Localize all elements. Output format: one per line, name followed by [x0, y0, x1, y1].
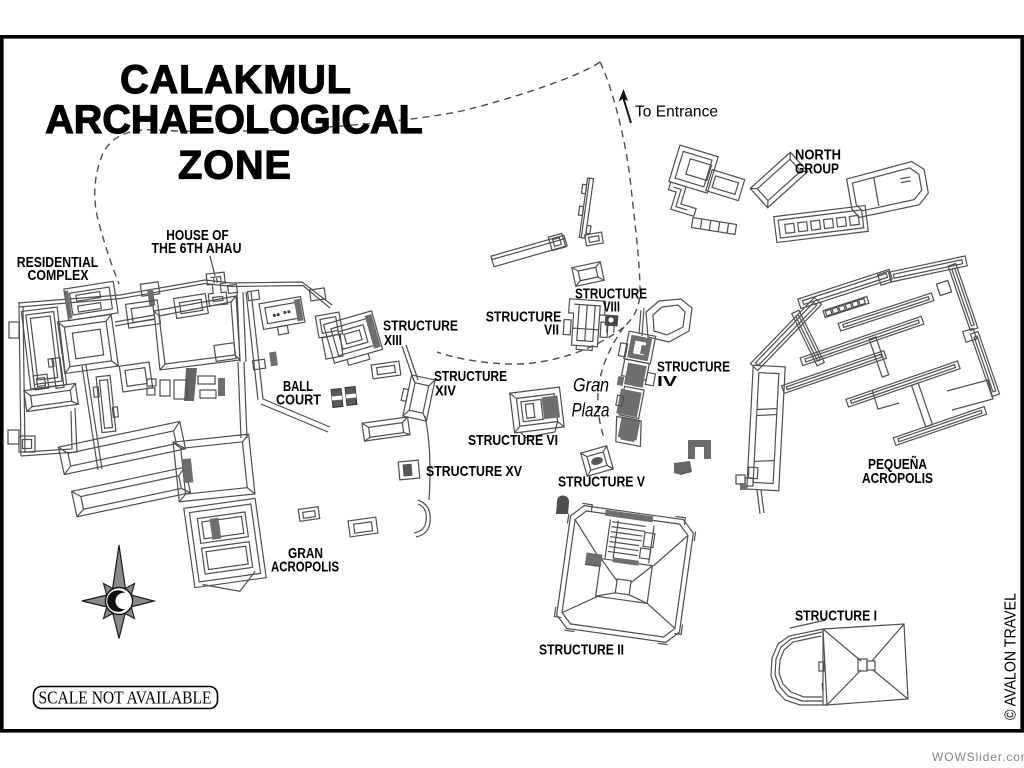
svg-text:STRUCTURE VI: STRUCTURE VI [468, 432, 558, 449]
svg-text:CALAKMUL: CALAKMUL [120, 58, 352, 102]
svg-text:THE 6TH AHAU: THE 6TH AHAU [152, 240, 242, 257]
svg-text:ACROPOLIS: ACROPOLIS [862, 470, 933, 487]
svg-text:STRUCTURE I: STRUCTURE I [795, 608, 877, 625]
svg-text:GROUP: GROUP [795, 161, 839, 178]
svg-text:ARCHAEOLOGICAL: ARCHAEOLOGICAL [45, 98, 422, 142]
svg-text:ACROPOLIS: ACROPOLIS [271, 559, 339, 576]
svg-text:IV: IV [657, 373, 677, 390]
svg-text:© AVALON TRAVEL: © AVALON TRAVEL [1003, 593, 1020, 720]
svg-text:ZONE: ZONE [178, 144, 292, 188]
svg-text:STRUCTURE II: STRUCTURE II [539, 642, 624, 659]
svg-text:Gran: Gran [573, 376, 609, 397]
svg-text:SCALE NOT AVAILABLE: SCALE NOT AVAILABLE [39, 688, 212, 708]
svg-text:XIV: XIV [435, 383, 456, 400]
svg-text:STRUCTURE V: STRUCTURE V [558, 474, 645, 491]
svg-text:COMPLEX: COMPLEX [28, 267, 89, 284]
svg-text:WOWSlider.com: WOWSlider.com [932, 750, 1024, 764]
svg-text:To Entrance: To Entrance [635, 104, 718, 121]
svg-text:VIII: VIII [603, 299, 620, 316]
svg-text:COURT: COURT [276, 392, 321, 409]
svg-text:Plaza: Plaza [572, 401, 610, 422]
svg-text:STRUCTURE XV: STRUCTURE XV [426, 463, 522, 480]
svg-text:VII: VII [544, 322, 559, 339]
svg-text:XIII: XIII [384, 332, 402, 349]
